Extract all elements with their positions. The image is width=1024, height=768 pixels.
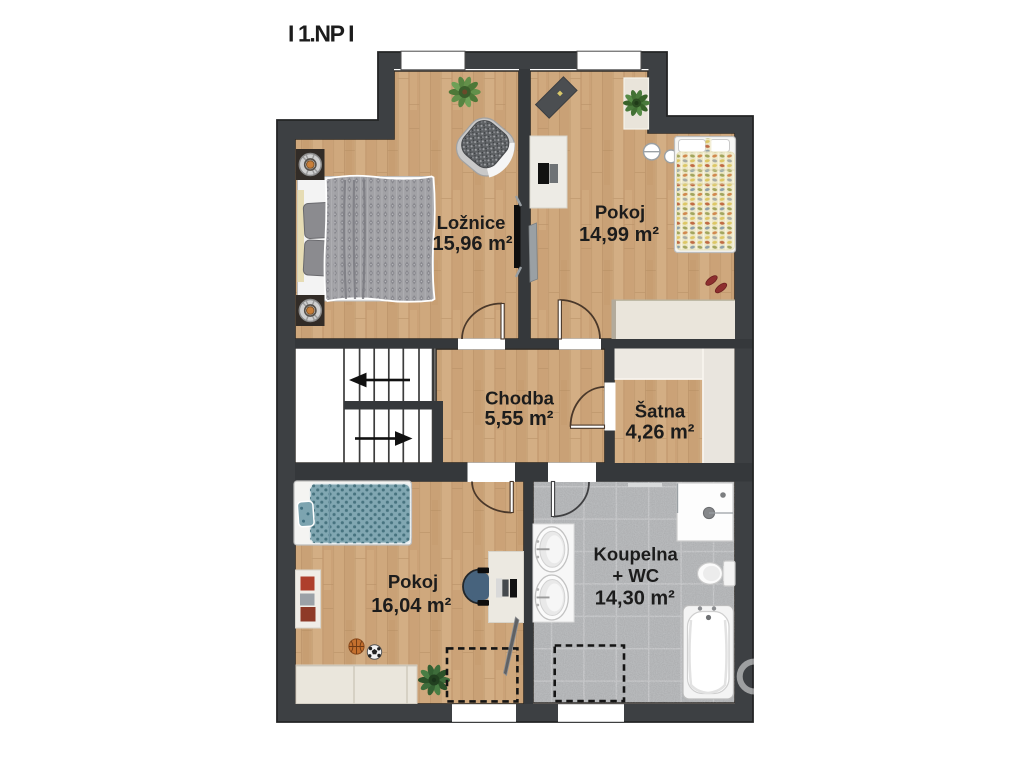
svg-text:5,55 m²: 5,55 m² [485, 408, 554, 430]
svg-text:+ WC: + WC [612, 565, 659, 586]
svg-text:16,04 m²: 16,04 m² [371, 595, 451, 617]
svg-text:15,96 m²: 15,96 m² [432, 233, 512, 255]
svg-text:14,99 m²: 14,99 m² [579, 224, 659, 246]
svg-text:Pokoj: Pokoj [595, 202, 645, 223]
svg-text:4,26 m²: 4,26 m² [626, 422, 695, 444]
svg-text:Chodba: Chodba [485, 388, 555, 409]
svg-text:I 1.NP I: I 1.NP I [288, 21, 353, 47]
svg-text:Šatna: Šatna [635, 401, 686, 422]
svg-text:Koupelna: Koupelna [594, 544, 679, 565]
svg-text:Pokoj: Pokoj [388, 571, 438, 592]
svg-text:Ložnice: Ložnice [437, 212, 506, 233]
svg-text:14,30 m²: 14,30 m² [595, 588, 675, 610]
